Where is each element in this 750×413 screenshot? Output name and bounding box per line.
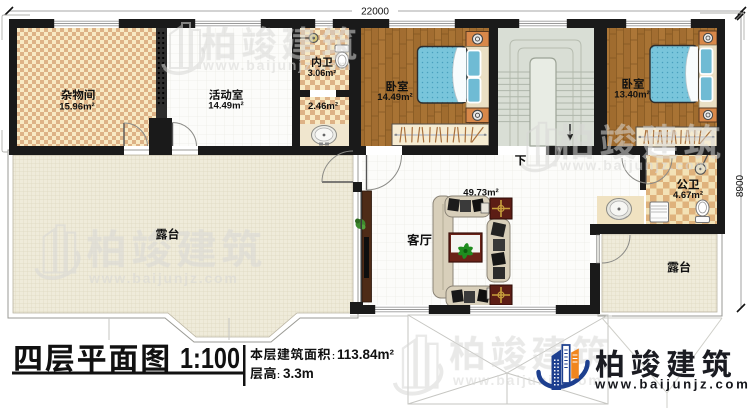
- svg-text:2.46m²: 2.46m²: [308, 101, 338, 112]
- svg-text:113.84m²: 113.84m²: [337, 347, 395, 362]
- svg-text:8900: 8900: [735, 174, 746, 197]
- svg-text::: :: [332, 351, 335, 361]
- svg-text:14.49m²: 14.49m²: [208, 101, 243, 112]
- svg-text::: :: [277, 370, 280, 380]
- svg-text:13.40m²: 13.40m²: [614, 90, 649, 101]
- svg-text:15.96m²: 15.96m²: [59, 102, 94, 113]
- svg-text:3.3m: 3.3m: [283, 366, 314, 381]
- svg-text:3.06m²: 3.06m²: [308, 68, 337, 78]
- svg-text:49.73m²: 49.73m²: [463, 188, 498, 199]
- svg-text:14.49m²: 14.49m²: [377, 92, 412, 103]
- svg-text:22000: 22000: [361, 7, 389, 18]
- svg-text:1:100: 1:100: [180, 343, 240, 375]
- svg-text:www.baijunjz.com: www.baijunjz.com: [88, 270, 239, 286]
- svg-text:www.baijunjz.com: www.baijunjz.com: [559, 157, 710, 173]
- svg-text:www.baijunjz.com: www.baijunjz.com: [594, 377, 750, 392]
- svg-text:4.67m²: 4.67m²: [673, 190, 703, 201]
